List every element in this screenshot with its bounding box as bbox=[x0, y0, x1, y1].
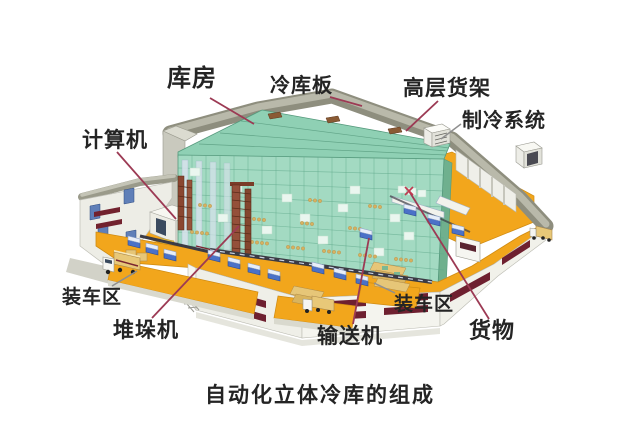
label-warehouse: 库房 bbox=[167, 66, 217, 91]
label-loading-area-left: 装车区 bbox=[62, 288, 122, 308]
cold-storage-diagram-page: 库房 冷库板 高层货架 制冷系统 计算机 装车区 堆垛机 输送机 装车区 货物 … bbox=[0, 0, 640, 440]
diagram-title: 自动化立体冷库的组成 bbox=[0, 379, 640, 409]
label-computer: 计算机 bbox=[82, 129, 148, 151]
label-loading-area-right: 装车区 bbox=[394, 295, 454, 315]
label-goods: 货物 bbox=[469, 320, 515, 343]
label-refrigeration-system: 制冷系统 bbox=[462, 110, 546, 131]
label-high-rise-rack: 高层货架 bbox=[403, 77, 491, 99]
label-stacker-crane: 堆垛机 bbox=[113, 319, 179, 341]
label-conveyor: 输送机 bbox=[317, 325, 383, 347]
warehouse-illustration bbox=[0, 0, 640, 440]
window bbox=[124, 188, 134, 204]
label-cold-storage-panel: 冷库板 bbox=[270, 75, 333, 96]
